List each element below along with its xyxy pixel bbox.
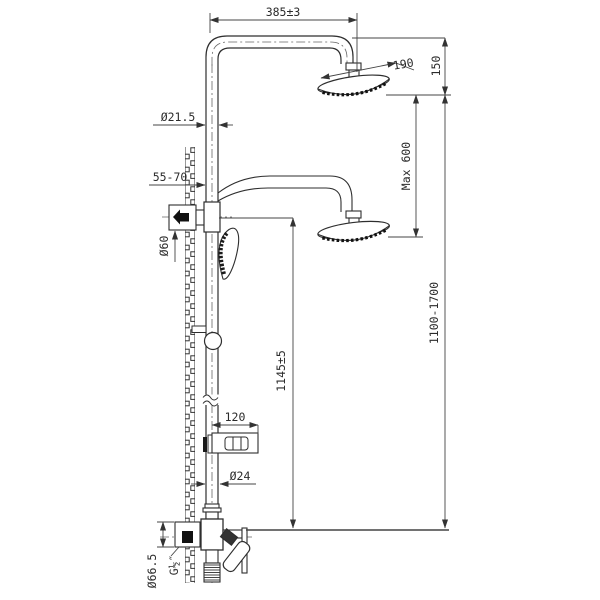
dim-label-wall-distance: 55-70: [153, 170, 188, 184]
lower-shower-head: [317, 218, 391, 244]
pipe-break-symbol: [203, 395, 221, 407]
hand-shower: [219, 228, 239, 279]
wall-anchor: [182, 531, 193, 543]
dim-label-thread-size: G½″: [167, 555, 181, 576]
lower-shower-arm: [218, 176, 352, 212]
slider-knob: [205, 333, 222, 350]
soap-dish: [203, 433, 258, 453]
mid-wall-bracket: [192, 326, 206, 333]
dim-label-escutcheon-diameter: Ø66.5: [145, 554, 159, 589]
drawing-canvas: 385±3 190 150 Max 600 1100-1700 Ø21.5 55…: [0, 0, 600, 600]
dim-label-bracket-diameter: Ø60: [157, 236, 171, 257]
dim-label-top-offset: 150: [429, 56, 443, 77]
dim-label-pipe-diameter-top: Ø21.5: [161, 110, 196, 124]
dim-label-max-drop: Max 600: [399, 142, 413, 191]
dim-label-head-diameter: 190: [392, 55, 415, 72]
column-tee-clamp: [204, 202, 220, 232]
dim-label-width-top: 385±3: [266, 5, 301, 19]
outlet-thread-hatch: [205, 565, 220, 580]
technical-drawing: 385±3 190 150 Max 600 1100-1700 Ø21.5 55…: [0, 0, 600, 600]
dim-label-handle-height: 1145±5: [274, 350, 288, 392]
dim-label-column-height-range: 1100-1700: [427, 282, 441, 344]
dim-label-soap-dish-width: 120: [225, 410, 246, 424]
dim-label-pipe-diameter-bottom: Ø24: [230, 469, 251, 483]
wall-bracket: [169, 205, 205, 230]
